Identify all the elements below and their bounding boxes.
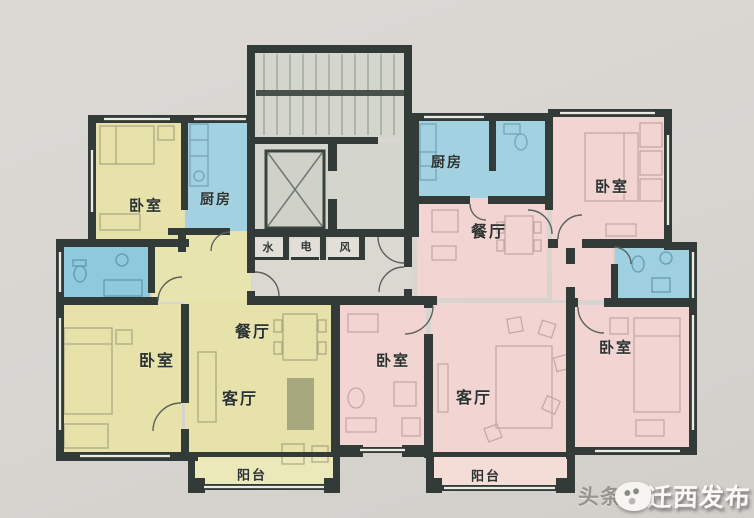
floor-plan-photo: 卧室厨房餐厅卧室客厅阳台厨房卧室餐厅卧室客厅卧室阳台水电风 头条 迁西发布 [0, 0, 754, 518]
watermark-logo-icon [614, 482, 651, 511]
watermark-front-text: 迁西发布 [646, 478, 751, 514]
watermark: 头条 迁西发布 [577, 478, 751, 514]
elevator [266, 151, 324, 228]
floor-plan-drawing [0, 0, 754, 518]
